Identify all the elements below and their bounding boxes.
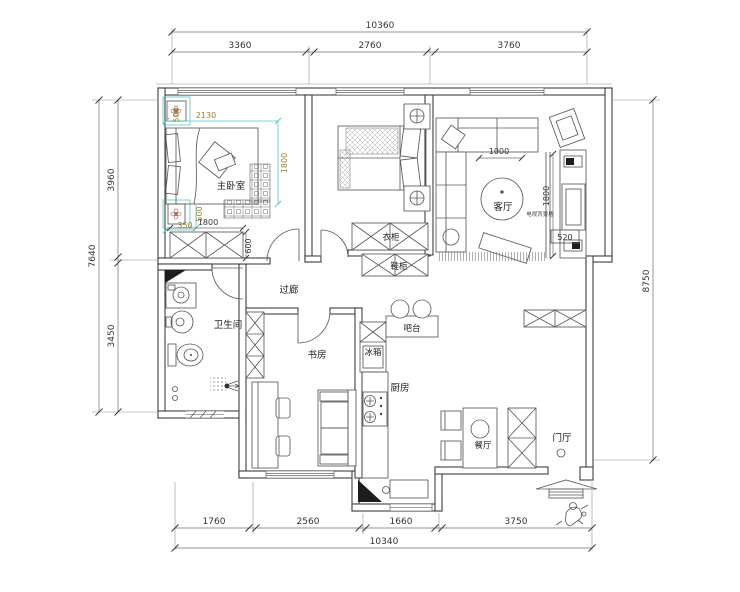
lamp-icon bbox=[557, 449, 565, 457]
wall-right-lower bbox=[586, 256, 593, 468]
room-label-bathroom: 卫生间 bbox=[214, 319, 243, 331]
room-label-foyer: 门厅 bbox=[552, 432, 572, 444]
room-label-shoe-cabinet: 鞋柜 bbox=[390, 261, 408, 272]
label-tv-wall: 电视背景墙 bbox=[526, 210, 554, 218]
living-room: 客厅 电视背景墙 1000 1800 520 bbox=[436, 109, 586, 327]
wall-master-br2 bbox=[305, 95, 312, 262]
toilet-icon bbox=[168, 344, 203, 366]
shower-icon bbox=[210, 376, 239, 392]
entry-canopy-icon bbox=[536, 480, 597, 498]
bed-double-icon bbox=[166, 128, 258, 204]
drain-icon bbox=[173, 396, 178, 401]
bookcase-icon bbox=[246, 312, 264, 378]
rug-icon bbox=[224, 200, 270, 218]
floor-plan-svg: 2130 1800 500 500 350 1800 600 主卧室 衣柜 bbox=[0, 0, 740, 592]
nightstand-lamp-icon bbox=[404, 104, 430, 129]
bar-stool-icon bbox=[391, 300, 409, 318]
stove-icon bbox=[363, 392, 387, 426]
dim-label: 1800 bbox=[280, 153, 289, 173]
dim-label: 2760 bbox=[359, 41, 382, 51]
dim-label: 1760 bbox=[203, 517, 226, 527]
dimension-left: 7640 3960 3450 bbox=[88, 97, 158, 416]
nightstand-lamp-icon bbox=[404, 186, 430, 211]
dining: 餐厅 bbox=[441, 408, 536, 468]
dim-label: 520 bbox=[557, 233, 572, 242]
dining-chair-icon bbox=[441, 441, 461, 460]
room-label-kitchen: 厨房 bbox=[390, 382, 409, 394]
window-bedroom2 bbox=[336, 88, 404, 95]
room-label-wardrobe: 衣柜 bbox=[382, 232, 400, 243]
sink-corner-icon bbox=[358, 480, 428, 502]
wardrobe-master-icon bbox=[170, 232, 243, 258]
dim-label: 3450 bbox=[107, 324, 117, 347]
door-master bbox=[267, 229, 299, 261]
dim-label: 10340 bbox=[370, 537, 399, 547]
dining-cabinet-icon bbox=[508, 408, 536, 468]
dim-label: 10360 bbox=[366, 21, 395, 31]
dimension-top: 10360 3360 2760 3760 bbox=[169, 21, 591, 84]
dim-label: 600 bbox=[244, 238, 253, 253]
room-label-dining: 餐厅 bbox=[474, 441, 492, 451]
window-kitchen bbox=[390, 504, 432, 511]
dim-label: 2130 bbox=[196, 111, 216, 120]
plant-icon bbox=[171, 209, 181, 219]
sofa-study-icon bbox=[318, 390, 356, 466]
room-label-study: 书房 bbox=[307, 349, 326, 361]
dim-label: 2560 bbox=[297, 517, 320, 527]
room-label-master-bedroom: 主卧室 bbox=[217, 180, 246, 192]
window-living bbox=[470, 88, 544, 95]
wall-study-left bbox=[239, 264, 246, 478]
door-study bbox=[298, 311, 330, 343]
room-label-fridge: 冰箱 bbox=[364, 347, 382, 358]
wall-right-upper bbox=[605, 88, 612, 262]
sofa-corner-icon bbox=[436, 118, 538, 252]
dim-label: 3360 bbox=[229, 41, 252, 51]
kitchen: 冰箱 吧台 厨房 bbox=[358, 300, 438, 502]
dim-label: 1800 bbox=[542, 186, 551, 206]
wall-entry-step bbox=[580, 467, 593, 480]
room-label-bar: 吧台 bbox=[403, 323, 420, 334]
dim-label: 1800 bbox=[198, 218, 218, 227]
room-label-living-room: 客厅 bbox=[493, 201, 513, 213]
decor-icon bbox=[549, 109, 584, 148]
bedroom-2: 衣柜 鞋柜 bbox=[321, 104, 430, 276]
washing-machine-icon bbox=[166, 283, 196, 308]
door-bathroom bbox=[212, 268, 243, 299]
dim-label: 1000 bbox=[489, 147, 509, 156]
entrance-figure bbox=[556, 503, 588, 526]
round-rug-icon bbox=[481, 178, 523, 220]
wall-left bbox=[158, 88, 165, 418]
shelf-icon bbox=[165, 270, 186, 283]
study: 书房 bbox=[246, 311, 356, 468]
dim-label: 8750 bbox=[642, 269, 652, 292]
entry-cabinet-icon bbox=[524, 310, 586, 327]
fridge-icon bbox=[360, 322, 386, 372]
rug-fringe bbox=[437, 252, 547, 261]
wall-master-bottom bbox=[158, 258, 270, 264]
bathroom: 卫生间 bbox=[165, 268, 243, 401]
dimension-right: 8750 bbox=[593, 97, 660, 464]
dim-label: 3750 bbox=[505, 517, 528, 527]
door-bedroom2 bbox=[321, 230, 348, 257]
rug-icon bbox=[250, 164, 270, 202]
window-study bbox=[266, 471, 334, 478]
sink-icon bbox=[166, 311, 193, 333]
wall-bath-top bbox=[158, 264, 212, 270]
bed-icon bbox=[338, 126, 426, 190]
window-master bbox=[178, 88, 296, 95]
master-bedroom: 2130 1800 500 500 350 1800 600 主卧室 bbox=[163, 97, 299, 261]
desk-icon bbox=[252, 382, 290, 468]
dim-label: 350 bbox=[177, 221, 192, 230]
floor-plan-canvas: 2130 1800 500 500 350 1800 600 主卧室 衣柜 bbox=[0, 0, 740, 592]
window-bathroom bbox=[186, 411, 224, 418]
dim-label: 3760 bbox=[498, 41, 521, 51]
drain-icon bbox=[173, 387, 178, 392]
dim-label: 500 bbox=[172, 107, 181, 122]
dining-chair-icon bbox=[441, 411, 461, 430]
bar-stool-icon bbox=[413, 300, 431, 318]
dim-label: 3960 bbox=[107, 168, 117, 191]
dim-label: 7640 bbox=[88, 244, 98, 267]
wall-br2-bottom-a bbox=[305, 256, 321, 262]
room-label-corridor: 过廊 bbox=[279, 284, 299, 296]
dim-label: 1660 bbox=[390, 517, 413, 527]
